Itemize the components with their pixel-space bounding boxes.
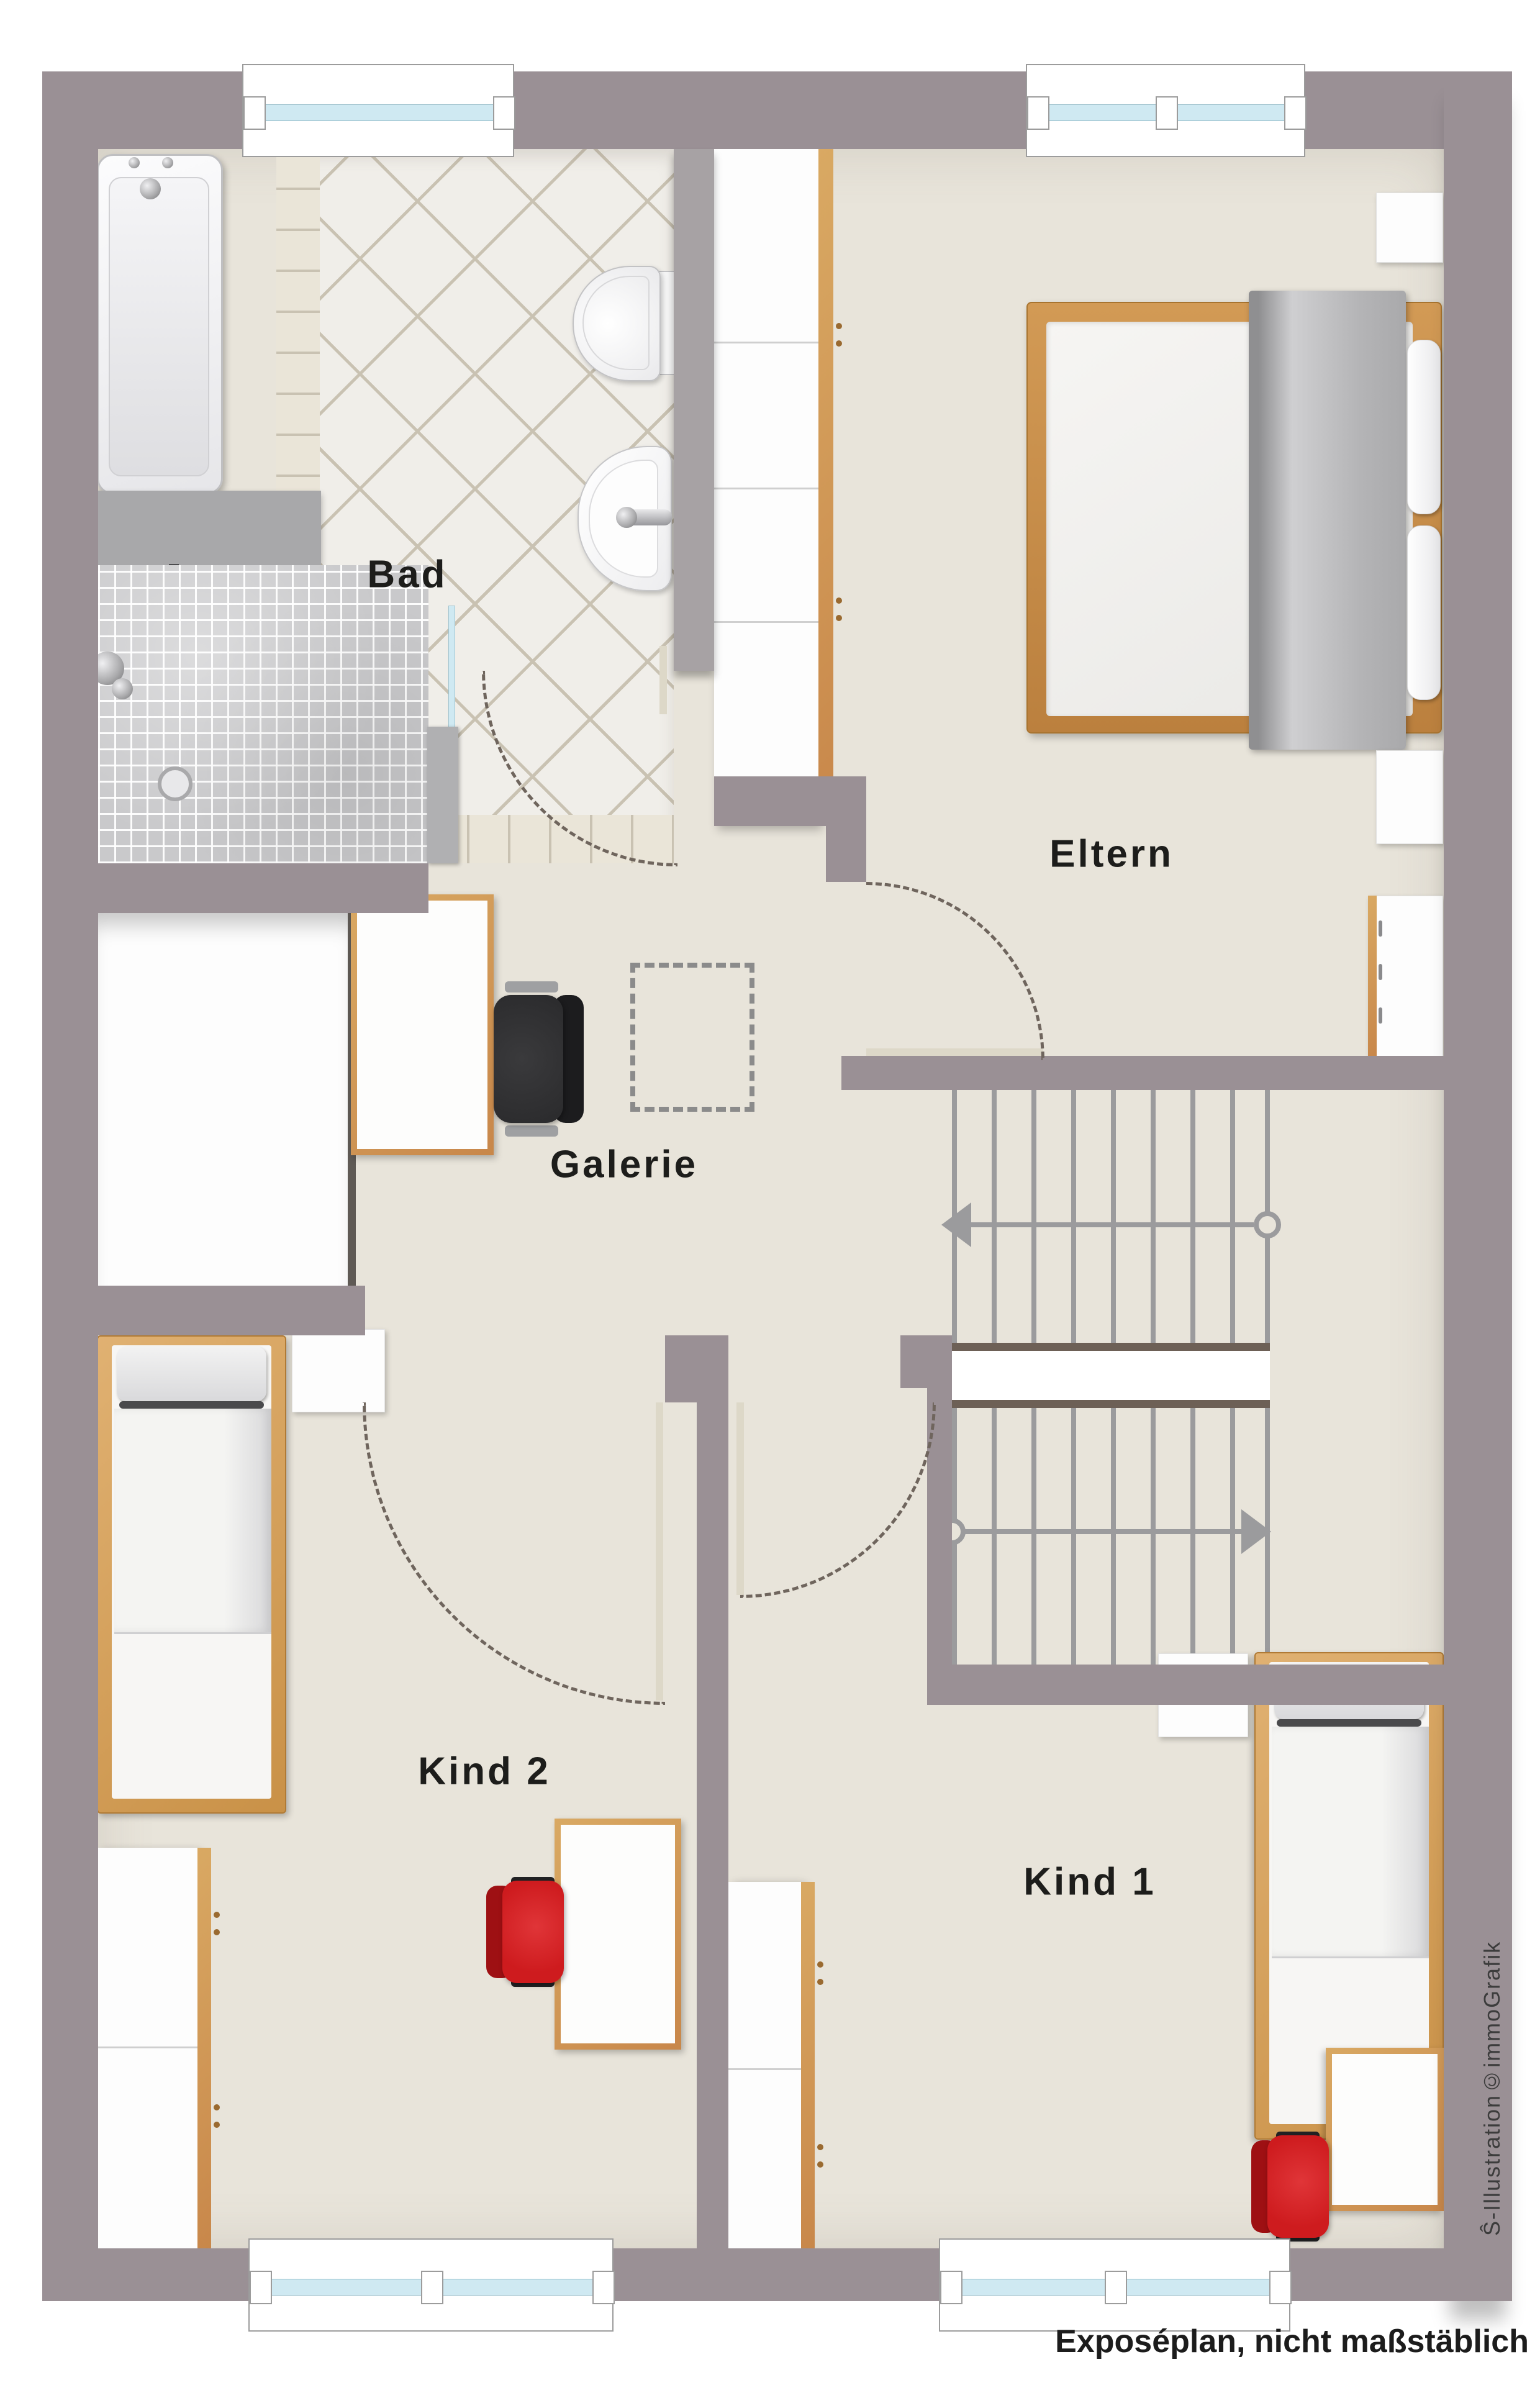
shower-half-wall: [97, 491, 321, 565]
eltern-wardrobe-side: [818, 149, 833, 826]
wall-bath-bottom: [42, 863, 428, 913]
plan-disclaimer: Exposéplan, nicht maßstäblich: [994, 2323, 1529, 2360]
stair-arrow-start-icon: [1254, 1211, 1281, 1238]
window-kind2: [248, 2238, 614, 2332]
gallery-void-area: [98, 913, 348, 1286]
wall-eltern-bottom: [841, 1056, 1444, 1090]
kind2-bed: [97, 1335, 286, 1814]
shower-door: [427, 727, 458, 863]
room-label-kind1: Kind 1: [1023, 1860, 1156, 1904]
kind2-desk-top: [561, 1825, 675, 2043]
kind1-wardrobe: [728, 1882, 801, 2248]
room-label-kind2: Kind 2: [418, 1750, 550, 1794]
room-label-galerie: Galerie: [550, 1143, 698, 1187]
eltern-wardrobe: [714, 149, 818, 826]
kind1-blanket: [1272, 1727, 1429, 1958]
galerie-office-chair: [494, 981, 584, 1137]
shower-mosaic-floor: [98, 565, 428, 863]
shower-door-glass: [448, 606, 455, 731]
kind1-headboard-bar: [1277, 1719, 1421, 1727]
shower-hose-icon: [112, 678, 133, 699]
shower-drain-icon: [158, 766, 192, 801]
wall-stair-left: [927, 1335, 952, 1665]
kind1-chair: [1251, 2135, 1329, 2238]
window-eltern: [1026, 64, 1305, 157]
sink: [577, 446, 676, 591]
bathroom-tile-border-left: [276, 149, 320, 491]
kind1-wardrobe-side: [801, 1882, 815, 2248]
chair-seat: [502, 1881, 564, 1983]
bathtub-basin: [109, 177, 209, 476]
room-label-eltern: Eltern: [1049, 832, 1174, 876]
kind2-headboard-bar: [119, 1401, 264, 1409]
eltern-bed: [1026, 302, 1442, 734]
window-bathroom: [242, 64, 514, 157]
kind2-pillow: [117, 1347, 266, 1401]
room-label-bad: Bad: [367, 553, 447, 597]
kind2-wardrobe: [98, 1848, 197, 2248]
galerie-desk: [351, 894, 494, 1155]
staircase: [952, 1090, 1270, 1665]
wall-eltern-jog-v: [826, 776, 866, 882]
chair-seat: [1267, 2135, 1329, 2238]
bathtub-handle-right-icon: [162, 157, 173, 168]
stair-arrow-down-head-icon: [1241, 1509, 1271, 1554]
bathtub-handle-left-icon: [129, 157, 140, 168]
wall-divider-cap: [665, 1335, 728, 1402]
wall-divider-stem: [697, 1402, 728, 2248]
bathtub-faucet-icon: [140, 178, 161, 199]
kind2-blanket: [114, 1409, 271, 1634]
eltern-nightstand-bottom: [1376, 750, 1443, 844]
window-kind1: [939, 2238, 1290, 2332]
stair-flight-upper: [952, 1090, 1270, 1343]
eltern-pillow-top: [1407, 340, 1441, 514]
chair-seat: [494, 995, 563, 1123]
kind1-desk-top: [1332, 2054, 1438, 2205]
stair-arrow-up-head-icon: [941, 1202, 971, 1247]
eltern-blanket: [1249, 291, 1406, 750]
floor-plan-page: Bad Eltern Galerie Kind 2 Kind 1 Ŝ-Illus…: [0, 0, 1540, 2403]
stair-flight-lower: [952, 1408, 1270, 1665]
stair-arrow-down-shaft: [954, 1529, 1241, 1534]
kind1-desk: [1326, 2048, 1444, 2211]
stair-landing: [928, 1343, 1270, 1408]
galerie-desk-top: [357, 901, 487, 1149]
eltern-nightstand-top: [1376, 193, 1443, 263]
kind2-nightstand: [292, 1329, 385, 1412]
open-ceiling-dashed-outline: [630, 963, 754, 1112]
illustration-credit: Ŝ-Illustration©immoGrafik: [1479, 1925, 1511, 2236]
eltern-dresser-side: [1368, 896, 1377, 1056]
bathtub: [97, 154, 223, 494]
sink-faucet-knob-icon: [616, 507, 637, 528]
kind2-chair: [486, 1881, 564, 1983]
stair-arrow-up-shaft: [959, 1222, 1254, 1227]
wall-outer-left: [42, 71, 98, 2301]
wall-stair-bottom: [927, 1665, 1444, 1705]
wall-galerie-kind2: [98, 1286, 365, 1335]
kind2-wardrobe-side: [197, 1848, 211, 2248]
toilet-bowl: [573, 266, 661, 381]
kind2-desk: [555, 1819, 681, 2050]
toilet-seat-line: [582, 276, 650, 370]
wall-bath-right: [674, 149, 714, 671]
eltern-pillow-bottom: [1407, 525, 1441, 700]
toilet: [573, 266, 677, 381]
